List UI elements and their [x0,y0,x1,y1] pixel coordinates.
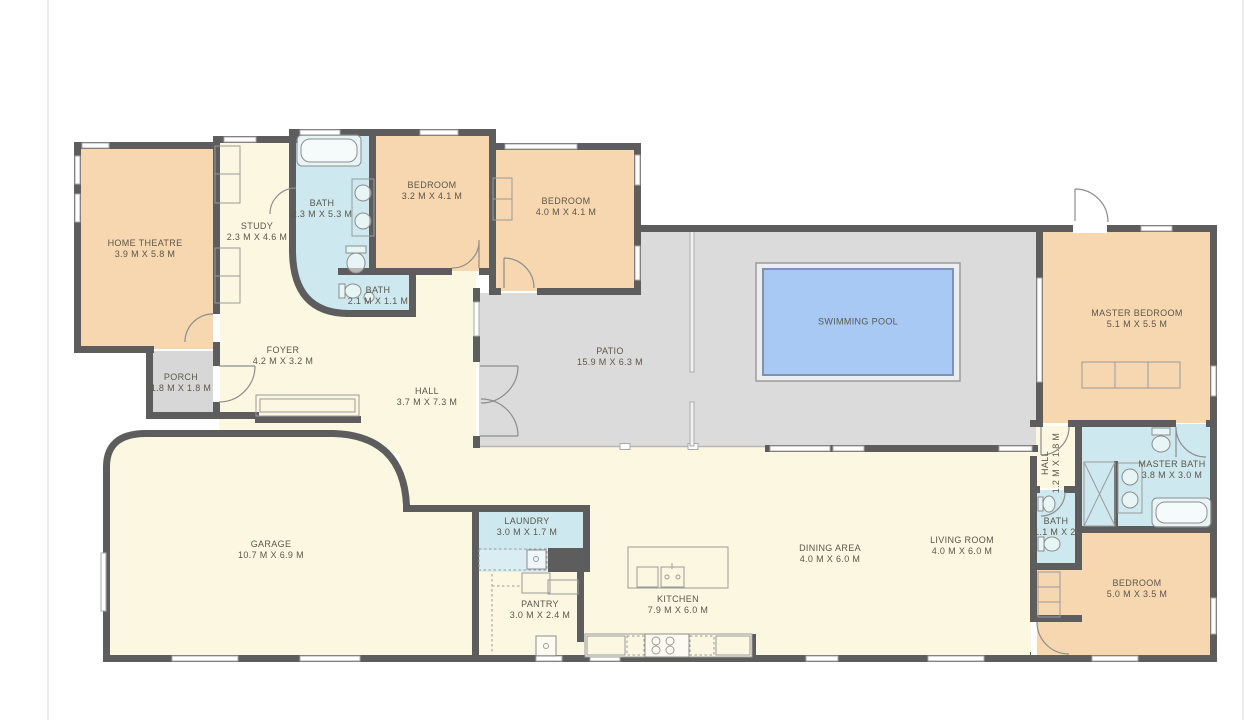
room-label-bath-ensuite: BATH 1.1 M X 2.1 M [1034,516,1078,538]
room-label-swimming-pool: SWIMMING POOL [818,317,898,328]
room-hall-floor [292,313,476,353]
bathtub-icon [1152,498,1211,527]
room-label-master-bedroom: MASTER BEDROOM 5.1 M X 5.5 M [1091,308,1182,330]
room-label-kitchen: KITCHEN 7.9 M X 6.0 M [648,594,709,616]
room-label-garage: GARAGE 10.7 M X 6.9 M [238,539,304,561]
room-label-master-bath: MASTER BATH 3.8 M X 3.0 M [1138,459,1205,481]
stove-icon [645,634,689,657]
sink-icon [1038,496,1055,512]
room-label-living-room: LIVING ROOM 4.0 M X 6.0 M [930,535,994,557]
room-label-foyer: FOYER 4.2 M X 3.2 M [253,345,314,367]
room-label-laundry: LAUNDRY 3.0 M X 1.7 M [497,516,558,538]
room-label-hall-small: HALL 1.2 M X 1.8 M [1040,433,1062,494]
toilet-icon [1038,537,1060,551]
master-bedroom-door-arc [1075,189,1108,222]
toilet-icon [1152,428,1170,452]
room-bedroom-2-floor [492,148,637,291]
room-label-bedroom-1: BEDROOM 3.2 M X 4.1 M [402,180,463,202]
room-label-dining-area: DINING AREA 4.0 M X 6.0 M [799,543,861,565]
room-label-bedroom-2: BEDROOM 4.0 M X 4.1 M [536,196,597,218]
room-label-bath-small: BATH 2.1 M X 1.1 M [348,285,409,307]
room-label-bath-top: BATH 2.3 M X 5.3 M [292,198,353,220]
room-label-bedroom-3: BEDROOM 5.0 M X 3.5 M [1107,578,1168,600]
washer-icon [527,550,546,569]
toilet-icon [346,246,366,273]
room-label-study: STUDY 2.3 M X 4.6 M [227,221,288,243]
kitchen-counter [585,634,752,657]
kitchen-island [628,547,728,588]
room-label-pantry: PANTRY 3.0 M X 2.4 M [510,599,571,621]
room-bedroom-1-floor [373,133,492,271]
room-label-patio: PATIO 15.9 M X 6.3 M [577,346,643,368]
room-label-home-theatre: HOME THEATRE 3.9 M X 5.8 M [108,238,183,260]
floorplan-page: HOME THEATRE 3.9 M X 5.8 M STUDY 2.3 M X… [0,0,1258,720]
room-label-porch: PORCH 1.8 M X 1.8 M [151,372,212,394]
room-label-hall: HALL 3.7 M X 7.3 M [397,386,458,408]
pantry-sink-icon [536,636,556,656]
bathtub-icon [297,135,361,166]
